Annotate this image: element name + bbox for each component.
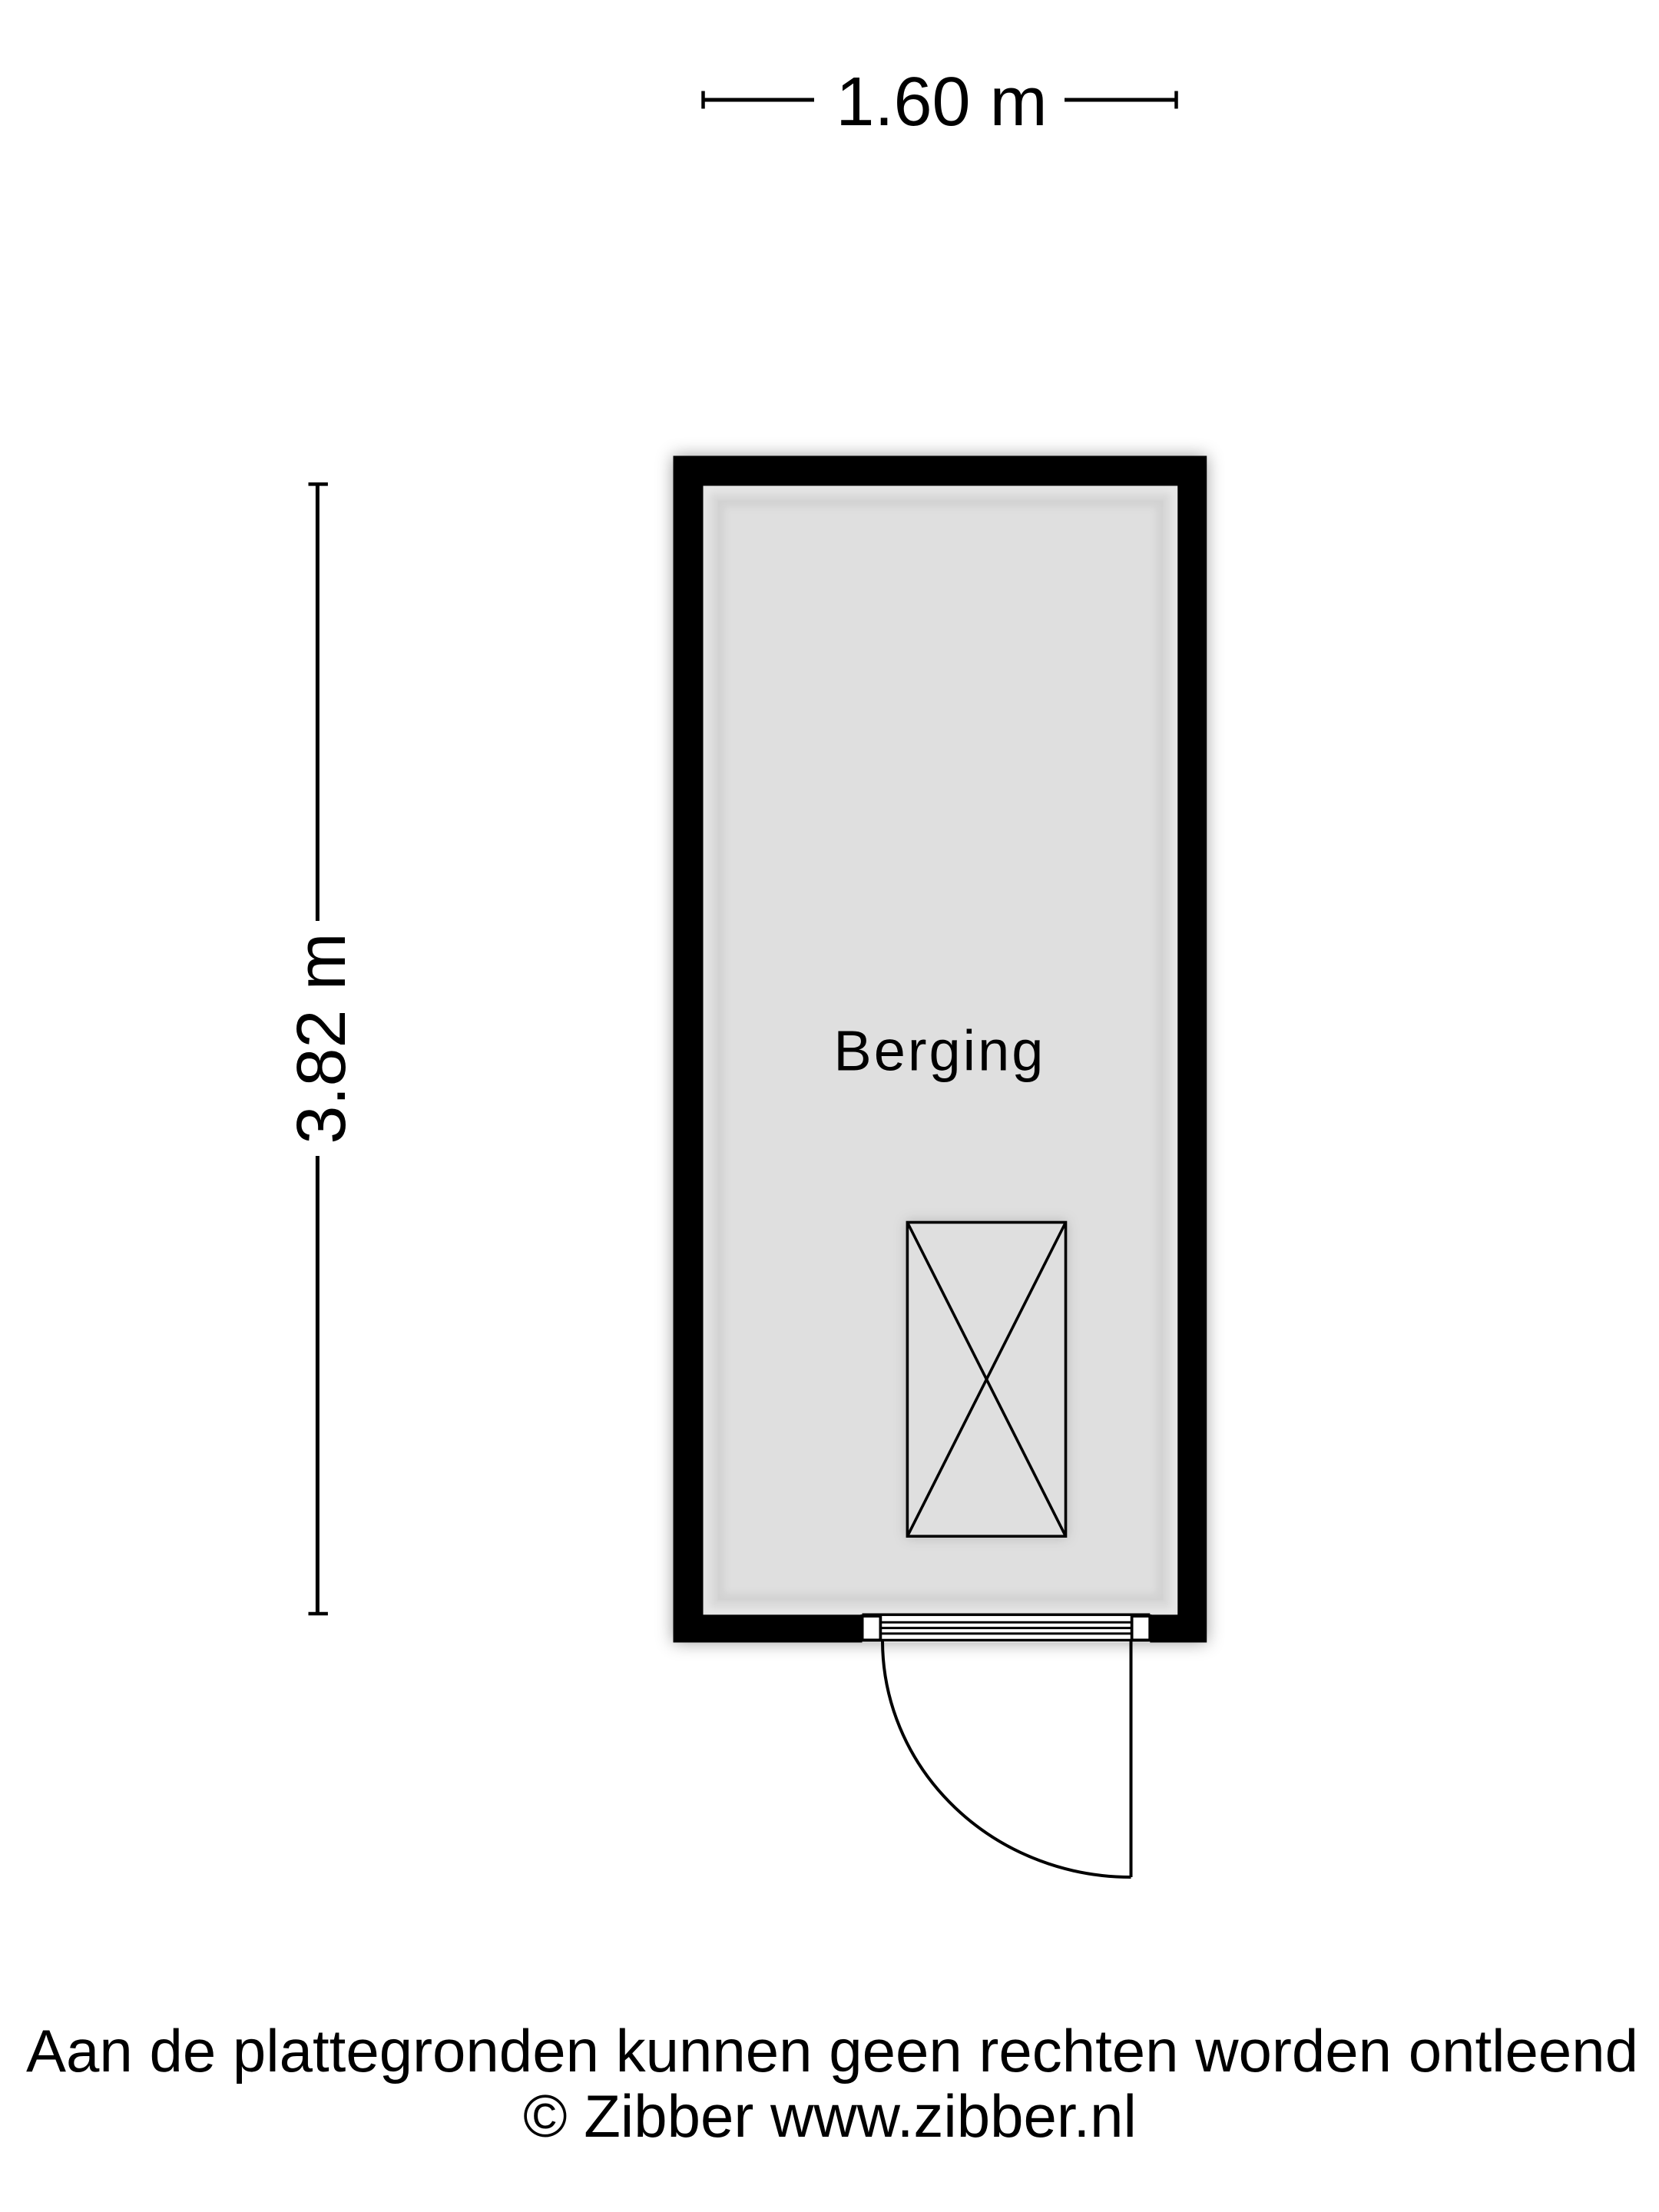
- svg-text:Berging: Berging: [833, 1019, 1045, 1083]
- svg-text:© Zibber www.zibber.nl: © Zibber www.zibber.nl: [523, 2082, 1137, 2150]
- svg-text:1.60 m: 1.60 m: [836, 64, 1047, 141]
- svg-text:3.82 m: 3.82 m: [283, 932, 360, 1144]
- svg-text:Aan de plattegronden kunnen ge: Aan de plattegronden kunnen geen rechten…: [26, 2017, 1638, 2085]
